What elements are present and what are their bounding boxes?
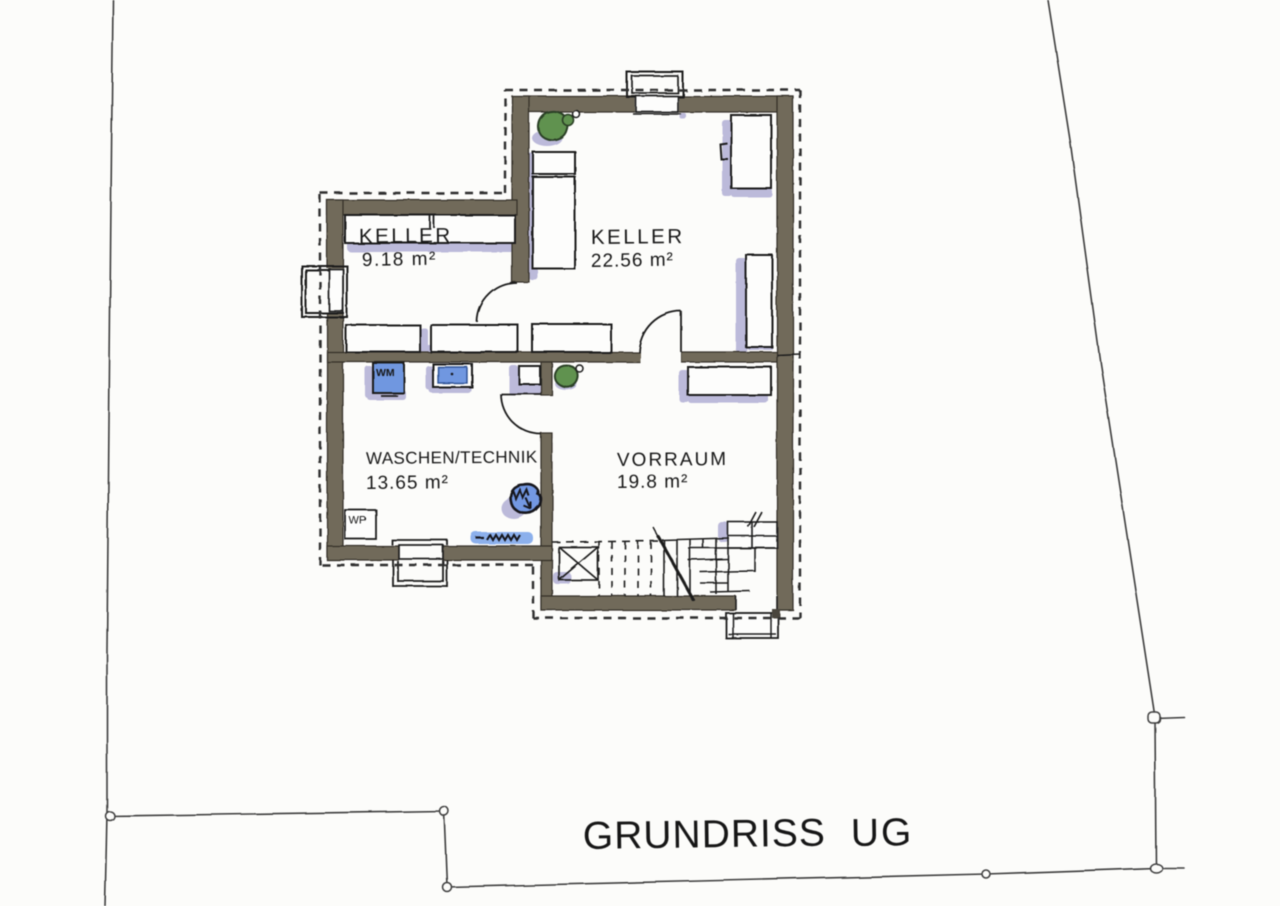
- svg-text:KELLER: KELLER: [359, 224, 453, 248]
- svg-text:WP: WP: [349, 515, 367, 527]
- svg-text:22.56 m²: 22.56 m²: [591, 250, 674, 272]
- svg-text:19.8 m²: 19.8 m²: [617, 471, 689, 493]
- svg-text:9.18 m²: 9.18 m²: [362, 249, 437, 271]
- svg-text:13.65 m²: 13.65 m²: [366, 472, 449, 494]
- svg-text:GRUNDRISS: GRUNDRISS: [583, 812, 827, 858]
- svg-text:WASCHEN/TECHNIK: WASCHEN/TECHNIK: [366, 448, 538, 468]
- svg-text:WM: WM: [376, 367, 395, 379]
- svg-text:UG: UG: [851, 811, 914, 855]
- svg-text:VORRAUM: VORRAUM: [617, 449, 728, 471]
- svg-text:KELLER: KELLER: [591, 225, 685, 249]
